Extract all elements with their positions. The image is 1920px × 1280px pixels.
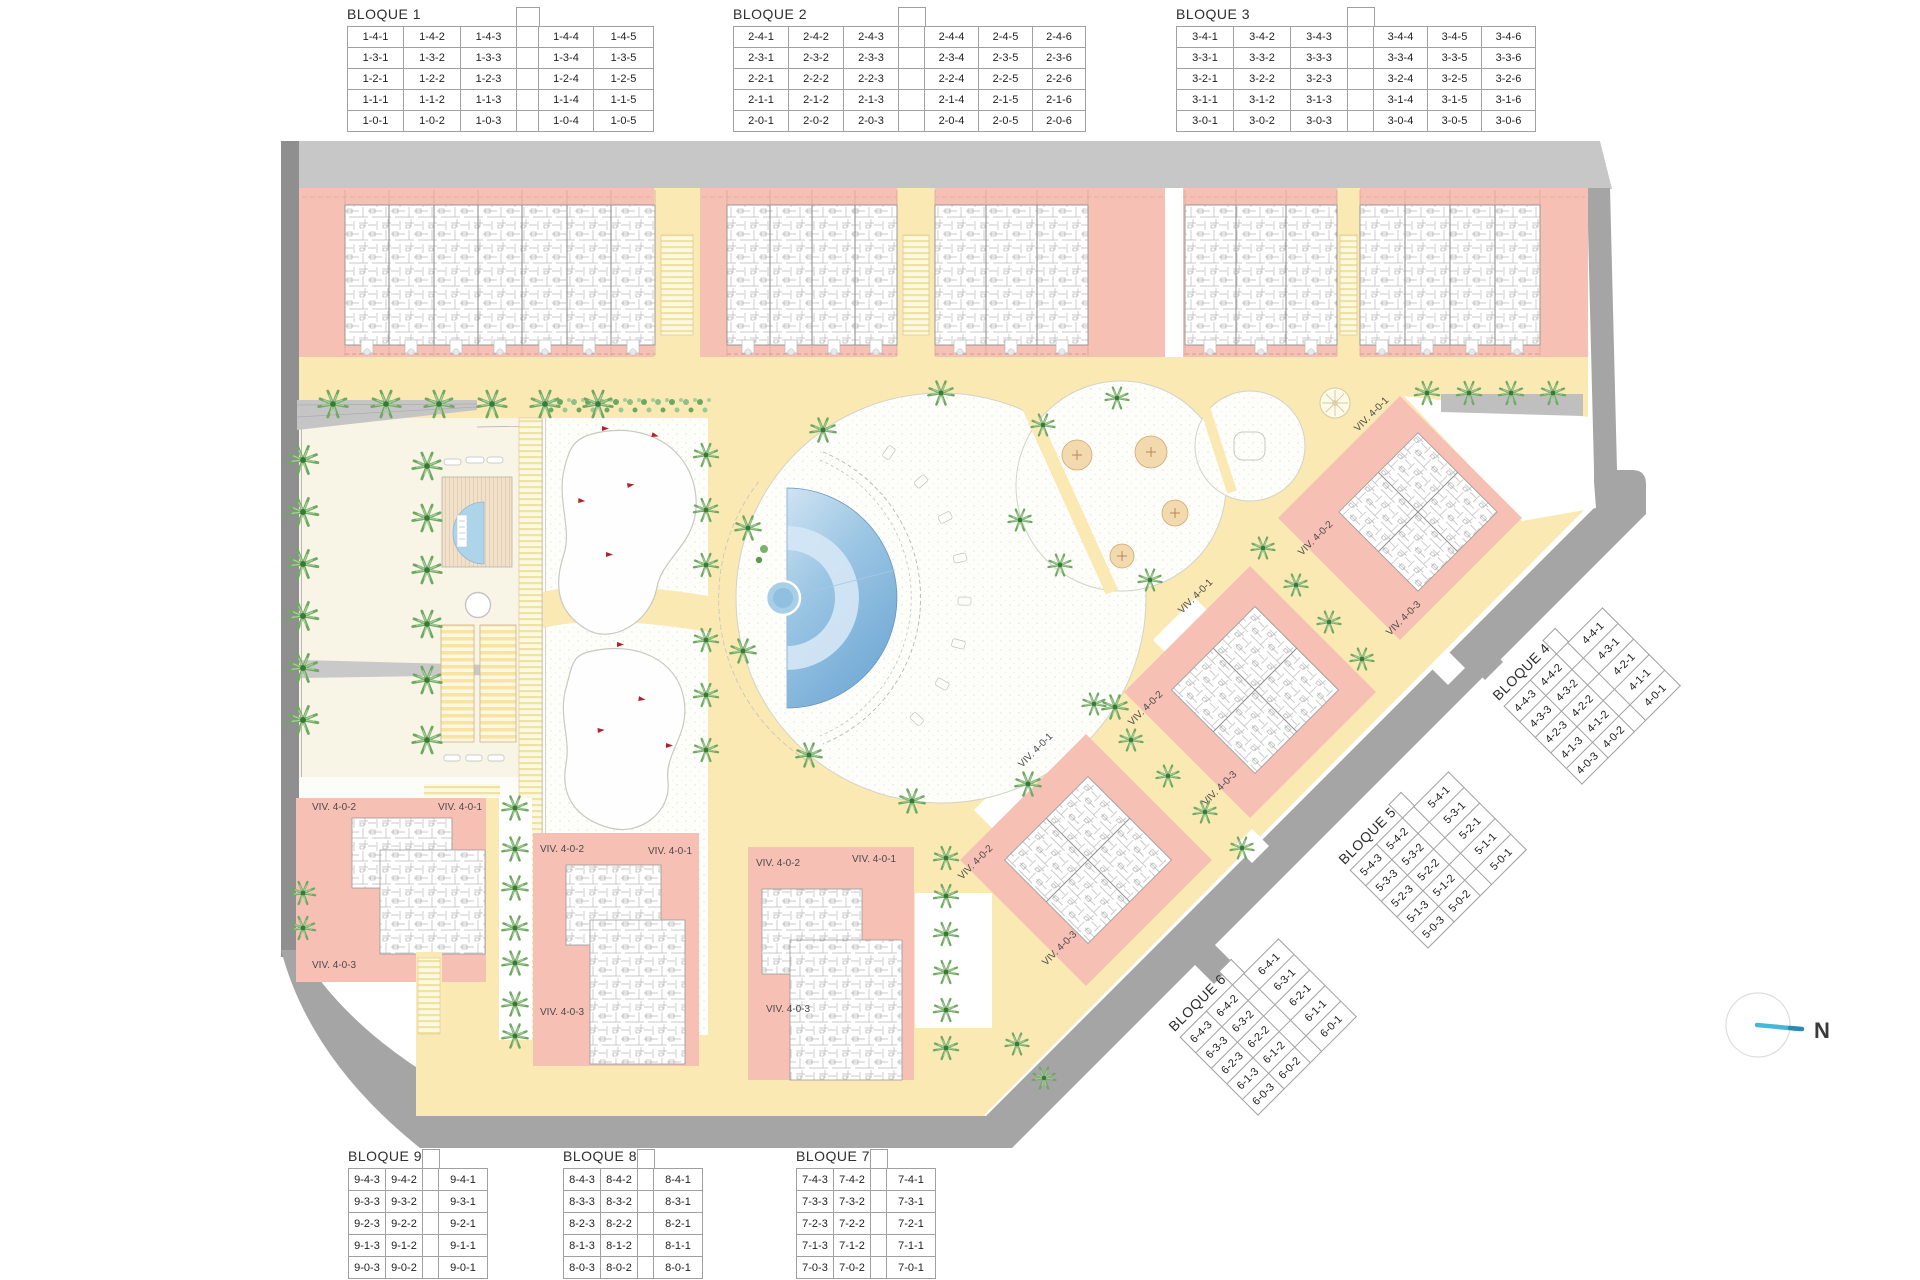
svg-text:VIV. 4-0-2: VIV. 4-0-2 [540, 844, 585, 855]
svg-text:VIV. 4-0-1: VIV. 4-0-1 [648, 846, 693, 857]
svg-text:N: N [1814, 1018, 1830, 1043]
svg-text:VIV. 4-0-1: VIV. 4-0-1 [852, 854, 897, 865]
svg-text:VIV. 4-0-2: VIV. 4-0-2 [756, 858, 801, 869]
svg-text:VIV. 4-0-1: VIV. 4-0-1 [438, 802, 483, 813]
svg-text:VIV. 4-0-2: VIV. 4-0-2 [312, 802, 357, 813]
svg-text:VIV. 4-0-3: VIV. 4-0-3 [766, 1004, 811, 1015]
svg-text:VIV. 4-0-3: VIV. 4-0-3 [540, 1007, 585, 1018]
svg-text:VIV. 4-0-3: VIV. 4-0-3 [312, 960, 357, 971]
